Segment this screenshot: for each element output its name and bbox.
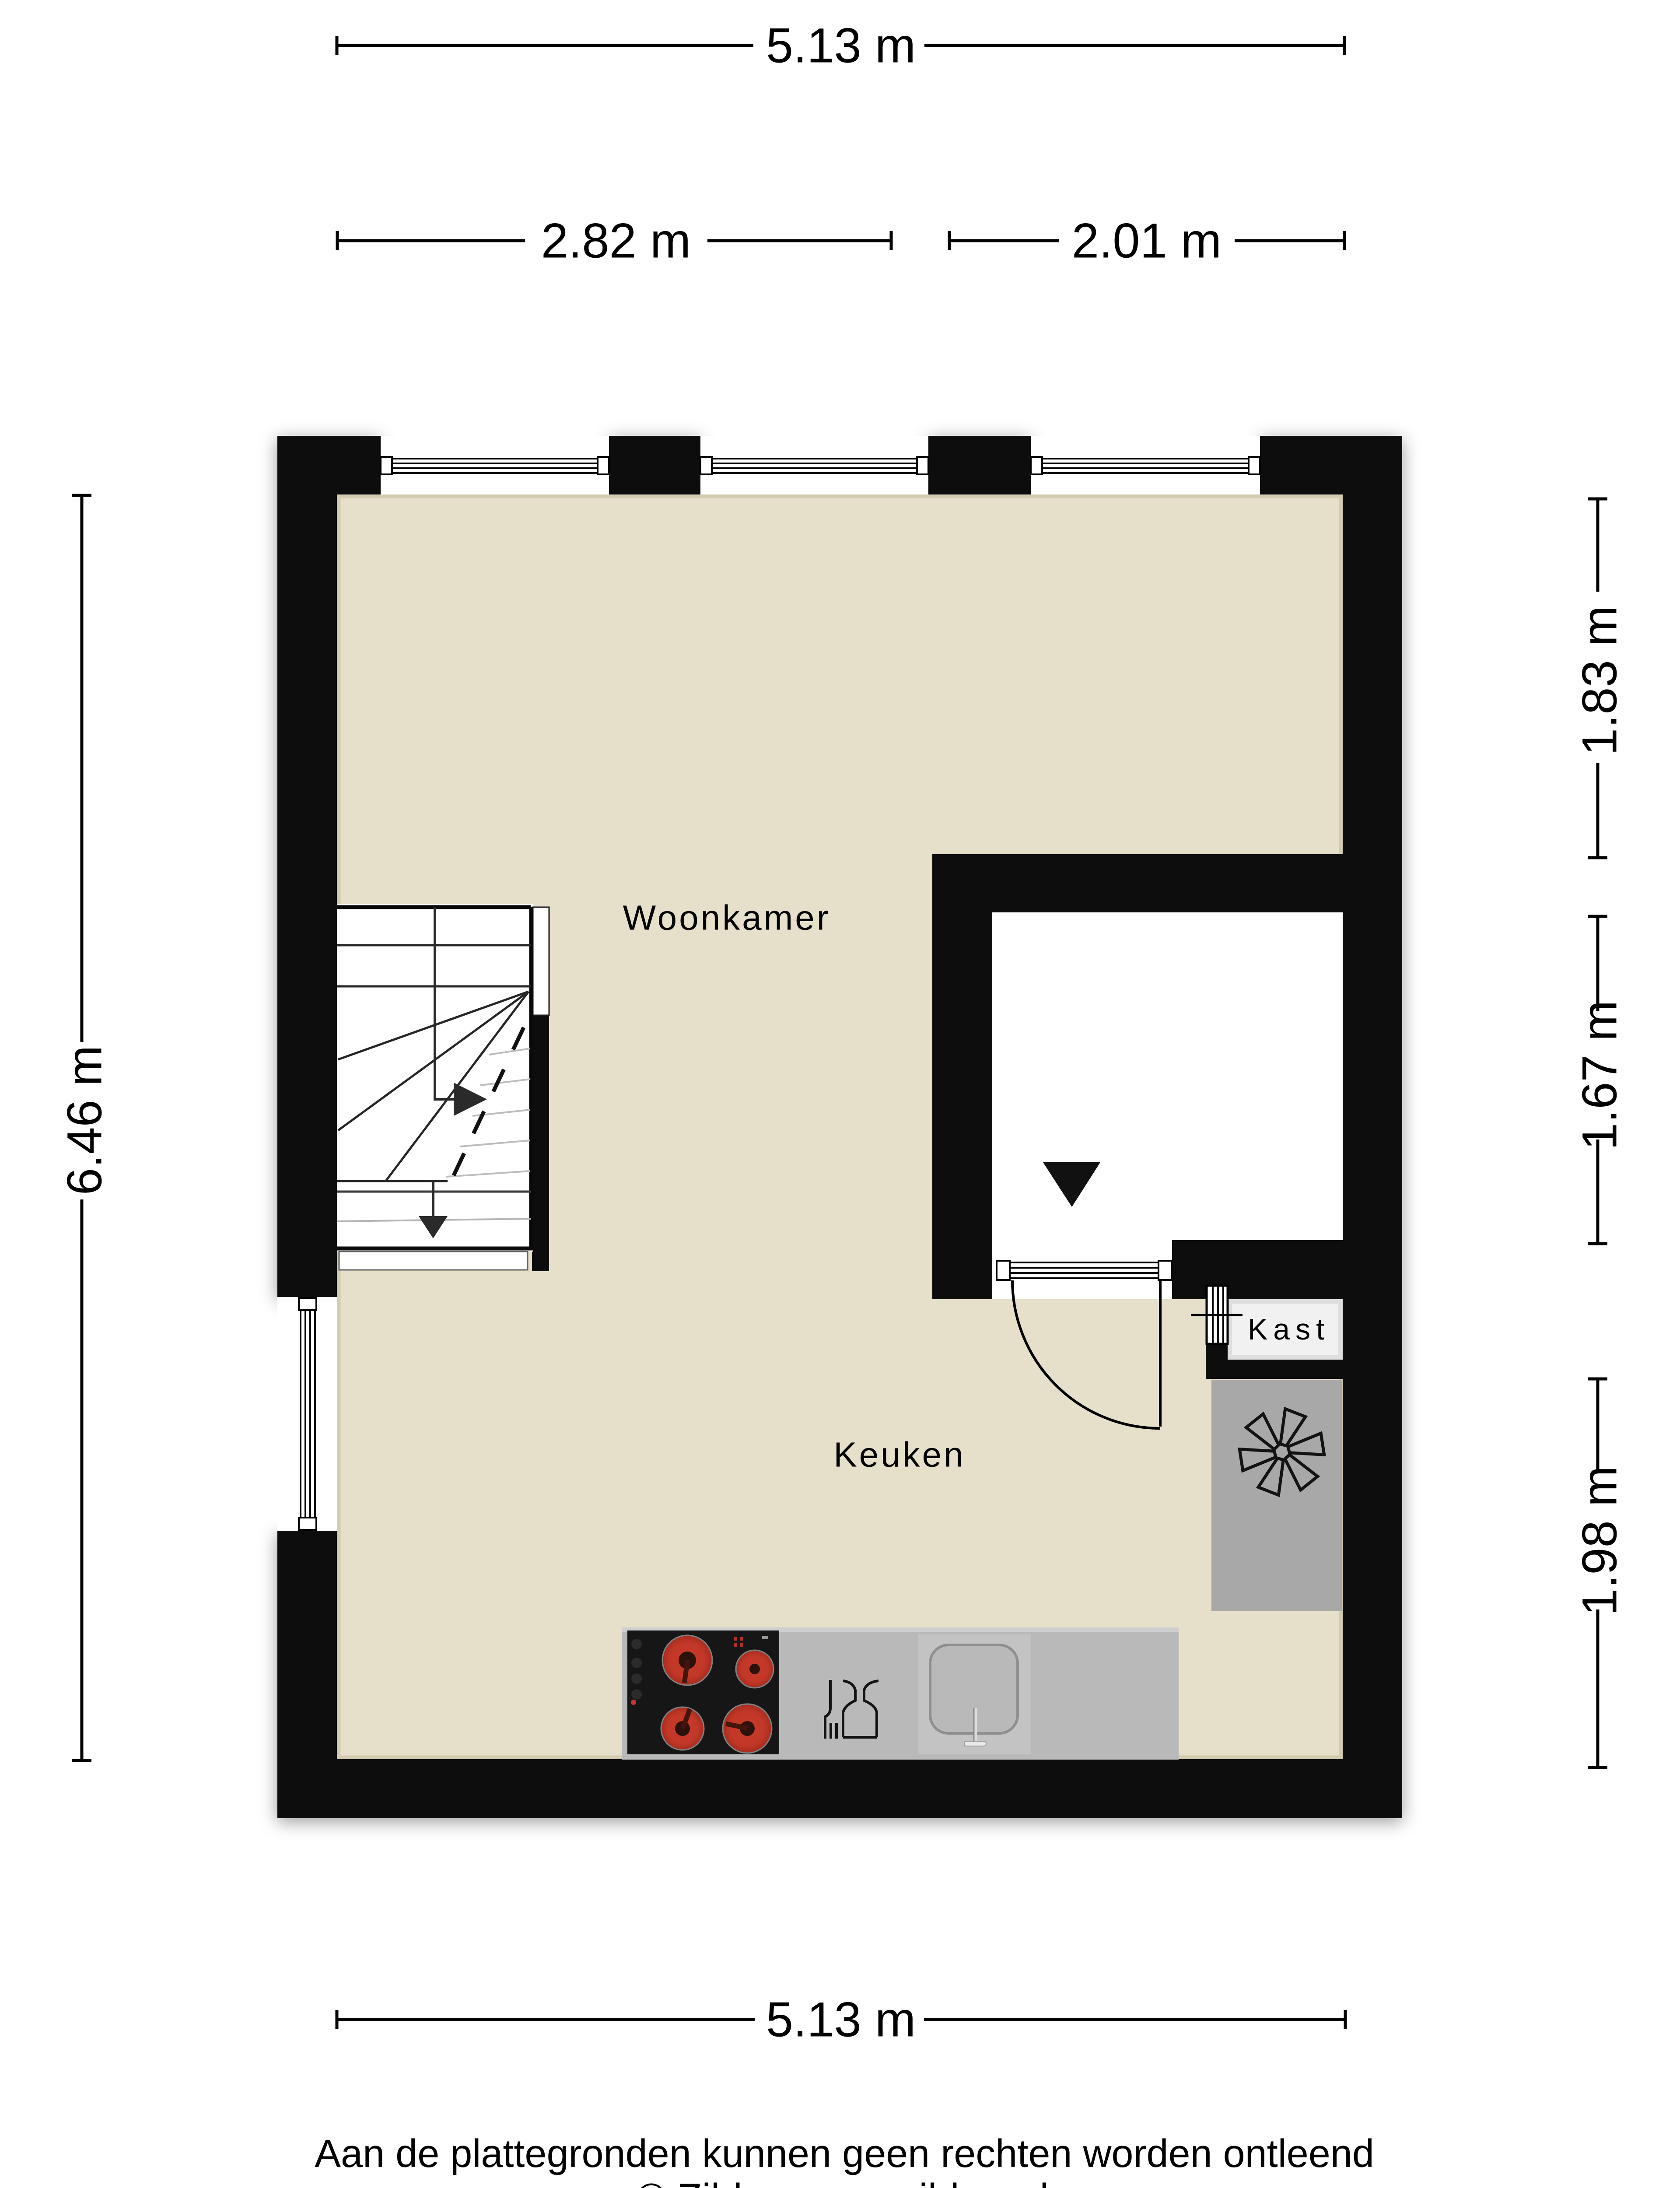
- svg-text:Woonkamer: Woonkamer: [623, 898, 831, 937]
- svg-text:1.98 m: 1.98 m: [1572, 1466, 1627, 1616]
- svg-text:© Zibber www.zibber.nl: © Zibber www.zibber.nl: [637, 2176, 1049, 2188]
- svg-text:6.46 m: 6.46 m: [57, 1045, 112, 1195]
- svg-text:Keuken: Keuken: [833, 1435, 965, 1474]
- svg-text:Kast: Kast: [1248, 1313, 1330, 1346]
- svg-text:1.83 m: 1.83 m: [1572, 606, 1627, 755]
- svg-text:2.01 m: 2.01 m: [1072, 214, 1221, 268]
- svg-text:5.13 m: 5.13 m: [766, 18, 916, 73]
- svg-text:Aan de plattegronden kunnen ge: Aan de plattegronden kunnen geen rechten…: [315, 2132, 1374, 2176]
- svg-text:2.82 m: 2.82 m: [541, 214, 691, 268]
- svg-text:5.13 m: 5.13 m: [766, 1992, 916, 2047]
- svg-text:1.67 m: 1.67 m: [1572, 1000, 1627, 1150]
